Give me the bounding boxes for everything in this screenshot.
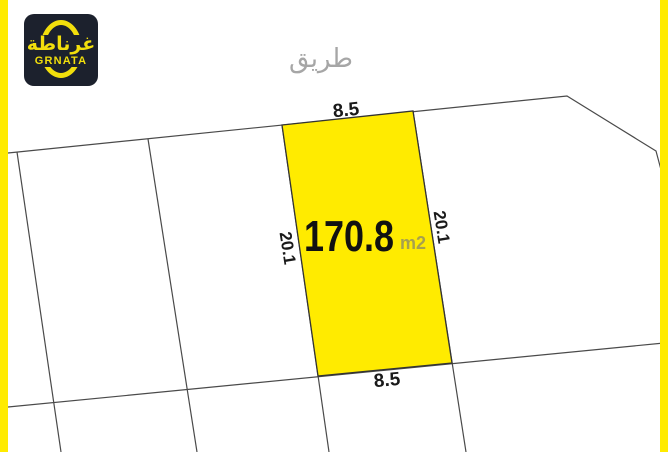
plot-dimension-top: 8.5 (332, 99, 361, 123)
frame-left-band (0, 0, 8, 452)
parcel-divider-1 (17, 152, 61, 452)
frame-right-band (660, 0, 668, 452)
plot-area-unit: m2 (400, 233, 426, 253)
plot-listing-image: طريق 8.5 8.5 20.1 20.1 170.8 m2 غرناطة G… (0, 0, 668, 452)
plot-area-value: 170.8 (304, 212, 394, 261)
logo-arabic-wordmark: غرناطة (25, 35, 98, 55)
plot-dimension-left: 20.1 (276, 230, 300, 266)
logo-latin-wordmark: GRNATA (33, 55, 90, 67)
plot-dimension-bottom: 8.5 (373, 369, 402, 392)
road-label: طريق (289, 43, 353, 74)
grnata-logo: غرناطة GRNATA (24, 14, 98, 86)
parcel-divider-2 (148, 139, 197, 452)
cadastral-plot-map: طريق 8.5 8.5 20.1 20.1 170.8 m2 (0, 0, 668, 452)
